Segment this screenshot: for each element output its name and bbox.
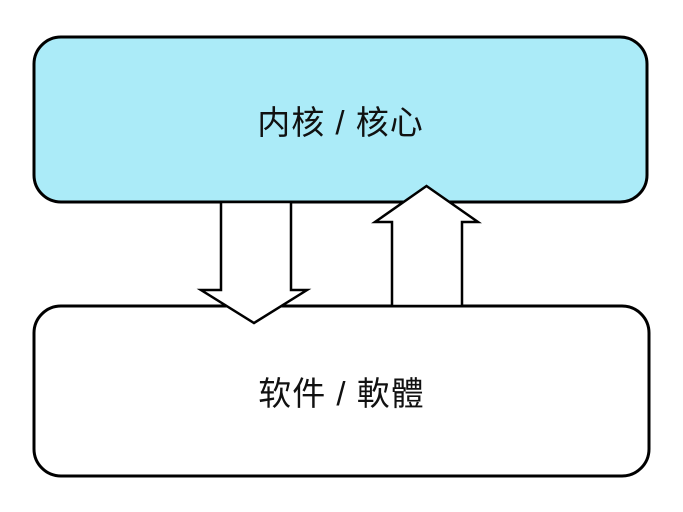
kernel-box (34, 37, 647, 202)
up-arrow (375, 186, 478, 306)
diagram-canvas: 内核 / 核心 软件 / 軟體 (0, 0, 683, 512)
software-box (34, 306, 649, 476)
diagram-figure (0, 0, 683, 512)
